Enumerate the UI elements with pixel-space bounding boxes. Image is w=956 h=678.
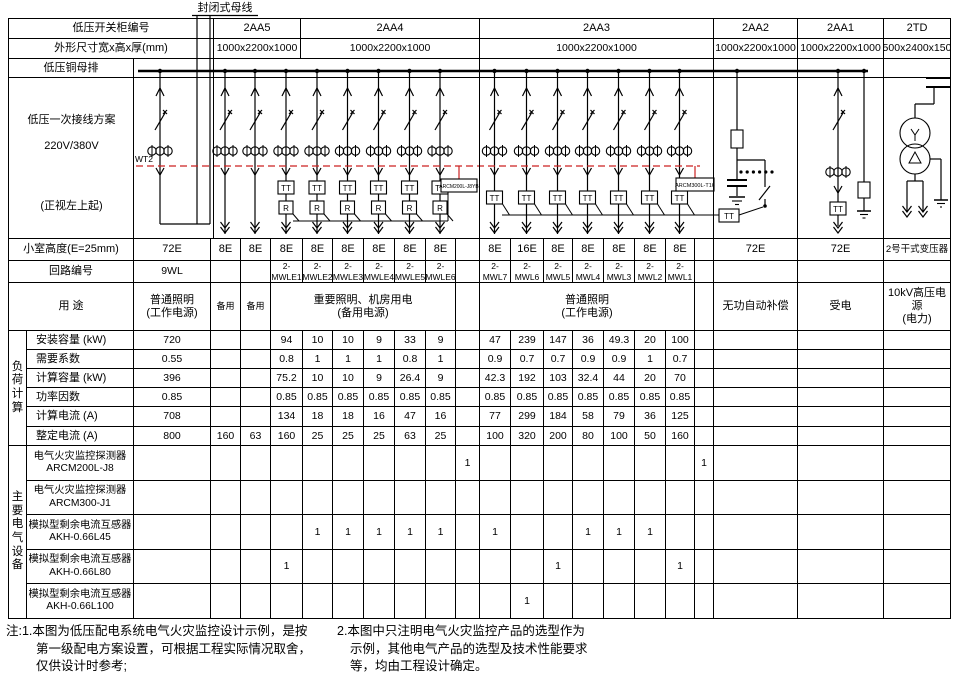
load-1-2AA1-col bbox=[797, 349, 884, 369]
device-2-2-MWLE2: 1 bbox=[302, 514, 333, 550]
load-5-spare-1: 160 bbox=[210, 426, 241, 446]
usage-cell-4 bbox=[455, 282, 480, 331]
load-1-2-MWLE5: 0.8 bbox=[394, 349, 426, 369]
load-2-2-MWL7: 42.3 bbox=[479, 368, 511, 388]
usage-cell-7: 无功自动补偿 bbox=[713, 282, 798, 331]
device-1-2-MWLE3 bbox=[332, 480, 364, 515]
device-row-label-2: 模拟型剩余电流互感器 AKH-0.66L45 bbox=[26, 514, 134, 550]
device-1-9WL bbox=[133, 480, 211, 515]
room-height-2-MWLE4: 8E bbox=[363, 238, 395, 261]
cabinet-dimension-2AA1: 1000x2200x1000 bbox=[797, 38, 884, 59]
load-4-2-MWL3: 79 bbox=[603, 406, 635, 427]
load-3-2-MWL7: 0.85 bbox=[479, 387, 511, 407]
load-4-2-MWLE3: 18 bbox=[332, 406, 364, 427]
usage-cell-1: 备用 bbox=[210, 282, 241, 331]
circuit-number-2AA2-col bbox=[713, 260, 798, 283]
room-height-2-MWL2: 8E bbox=[634, 238, 666, 261]
room-height-2-MWLE2: 8E bbox=[302, 238, 333, 261]
circuit-number-2-MWL3: 2-MWL3 bbox=[603, 260, 635, 283]
load-3-2TD-col bbox=[883, 387, 951, 407]
load-3-spare-2 bbox=[240, 387, 271, 407]
load-2-2-MWLE6: 9 bbox=[425, 368, 456, 388]
load-4-2-MWL1: 125 bbox=[665, 406, 695, 427]
note-2: 2.本图中只注明电气火灾监控产品的选型作为 示例，其他电气产品的选型及技术性能要… bbox=[337, 623, 695, 676]
usage-cell-0: 普通照明 (工作电源) bbox=[133, 282, 211, 331]
usage-cell-2: 备用 bbox=[240, 282, 271, 331]
circuit-number-2-MWLE2: 2-MWLE2 bbox=[302, 260, 333, 283]
load-1-2-MWLE1: 0.8 bbox=[270, 349, 303, 369]
load-2-2-MWL5: 103 bbox=[543, 368, 573, 388]
device-0-2-MWLE1 bbox=[270, 445, 303, 481]
device-3-9WL bbox=[133, 549, 211, 584]
device-3-2-MWL7 bbox=[479, 549, 511, 584]
load-3-2-MWLE2: 0.85 bbox=[302, 387, 333, 407]
scheme-cabinet-area-1 bbox=[213, 77, 480, 239]
load-5-2AA1-col bbox=[797, 426, 884, 446]
room-height-row-label: 小室高度(E=25mm) bbox=[8, 238, 134, 261]
circuit-number-2-MWLE1: 2-MWLE1 bbox=[270, 260, 303, 283]
room-height-spare-2: 8E bbox=[240, 238, 271, 261]
device-0-2-MWLE3 bbox=[332, 445, 364, 481]
circuit-number-2-MWL4: 2-MWL4 bbox=[572, 260, 604, 283]
device-3-2-MWL2 bbox=[634, 549, 666, 584]
device-2-2-MWL6 bbox=[510, 514, 544, 550]
device-4-2-MWLE2 bbox=[302, 583, 333, 619]
device-1-2AA1-col bbox=[797, 480, 884, 515]
load-1-2-MWL3: 0.9 bbox=[603, 349, 635, 369]
device-2-2-MWL7: 1 bbox=[479, 514, 511, 550]
dimension-row-label: 外形尺寸宽x高x厚(mm) bbox=[8, 38, 214, 59]
busway-label: 封闭式母线 bbox=[198, 0, 253, 14]
device-3-2-MWLE6 bbox=[425, 549, 456, 584]
circuit-number-2-MWL1: 2-MWL1 bbox=[665, 260, 695, 283]
busbar-cell-1 bbox=[213, 58, 480, 78]
load-1-2-MWLE4: 1 bbox=[363, 349, 395, 369]
load-3-2-MWLE6: 0.85 bbox=[425, 387, 456, 407]
device-4-aux-left bbox=[455, 583, 480, 619]
load-5-aux-right bbox=[694, 426, 714, 446]
load-0-2-MWL5: 147 bbox=[543, 330, 573, 350]
usage-cell-9: 10kV高压电源 (电力) bbox=[883, 282, 951, 331]
device-0-aux-left: 1 bbox=[455, 445, 480, 481]
note-1: 注:1.本图为低压配电系统电气火灾监控设计示例，是按 第一级配电方案设置，可根据… bbox=[6, 623, 366, 676]
room-height-2-MWL4: 8E bbox=[572, 238, 604, 261]
load-row-label-2: 计算容量 (kW) bbox=[26, 368, 134, 388]
load-0-2-MWLE6: 9 bbox=[425, 330, 456, 350]
load-3-2-MWL5: 0.85 bbox=[543, 387, 573, 407]
circuit-number-spare-1 bbox=[210, 260, 241, 283]
device-row-label-0: 电气火灾监控探测器 ARCM200L-J8 bbox=[26, 445, 134, 481]
device-4-2AA2-col bbox=[713, 583, 798, 619]
load-0-spare-2 bbox=[240, 330, 271, 350]
device-4-2-MWL7 bbox=[479, 583, 511, 619]
device-0-2-MWL4 bbox=[572, 445, 604, 481]
device-1-spare-1 bbox=[210, 480, 241, 515]
load-3-2-MWLE3: 0.85 bbox=[332, 387, 364, 407]
device-4-2-MWL6: 1 bbox=[510, 583, 544, 619]
cabinet-dimension-2AA5: 1000x2200x1000 bbox=[213, 38, 301, 59]
device-0-9WL bbox=[133, 445, 211, 481]
device-2-2-MWLE4: 1 bbox=[363, 514, 395, 550]
device-4-2-MWLE3 bbox=[332, 583, 364, 619]
device-3-2-MWLE4 bbox=[363, 549, 395, 584]
load-4-2-MWLE1: 134 bbox=[270, 406, 303, 427]
load-4-spare-2 bbox=[240, 406, 271, 427]
cabinet-id-2AA5: 2AA5 bbox=[213, 18, 301, 39]
load-4-2-MWLE2: 18 bbox=[302, 406, 333, 427]
device-4-2-MWL5 bbox=[543, 583, 573, 619]
device-1-2-MWL4 bbox=[572, 480, 604, 515]
cabinet-id-2AA1: 2AA1 bbox=[797, 18, 884, 39]
circuit-number-2-MWLE6: 2-MWLE6 bbox=[425, 260, 456, 283]
load-1-2-MWL7: 0.9 bbox=[479, 349, 511, 369]
cabinet-dimension-2AA4: 1000x2200x1000 bbox=[300, 38, 480, 59]
busbar-cell-4 bbox=[797, 58, 884, 78]
room-height-2-MWL3: 8E bbox=[603, 238, 635, 261]
device-row-label-1: 电气火灾监控探测器 ARCM300-J1 bbox=[26, 480, 134, 515]
load-0-9WL: 720 bbox=[133, 330, 211, 350]
room-height-2-MWLE6: 8E bbox=[425, 238, 456, 261]
load-4-2-MWL5: 184 bbox=[543, 406, 573, 427]
device-1-2-MWLE5 bbox=[394, 480, 426, 515]
device-4-9WL bbox=[133, 583, 211, 619]
load-1-2-MWL1: 0.7 bbox=[665, 349, 695, 369]
load-1-2-MWL4: 0.9 bbox=[572, 349, 604, 369]
load-4-2-MWL7: 77 bbox=[479, 406, 511, 427]
device-2-spare-1 bbox=[210, 514, 241, 550]
device-2-2-MWLE6: 1 bbox=[425, 514, 456, 550]
load-5-2-MWL6: 320 bbox=[510, 426, 544, 446]
load-1-2-MWL2: 1 bbox=[634, 349, 666, 369]
device-1-aux-right bbox=[694, 480, 714, 515]
load-0-2-MWLE1: 94 bbox=[270, 330, 303, 350]
device-2-2-MWL1 bbox=[665, 514, 695, 550]
room-height-9WL: 72E bbox=[133, 238, 211, 261]
load-2-2-MWLE5: 26.4 bbox=[394, 368, 426, 388]
device-4-2-MWL3 bbox=[603, 583, 635, 619]
load-4-spare-1 bbox=[210, 406, 241, 427]
device-1-2-MWLE4 bbox=[363, 480, 395, 515]
device-0-2-MWLE2 bbox=[302, 445, 333, 481]
load-0-2AA1-col bbox=[797, 330, 884, 350]
device-3-2-MWLE1: 1 bbox=[270, 549, 303, 584]
device-2-2-MWL5 bbox=[543, 514, 573, 550]
load-2-aux-left bbox=[455, 368, 480, 388]
load-3-2-MWL6: 0.85 bbox=[510, 387, 544, 407]
device-2-spare-2 bbox=[240, 514, 271, 550]
busbar-cell-0 bbox=[133, 58, 214, 78]
device-row-label-3: 模拟型剩余电流互感器 AKH-0.66L80 bbox=[26, 549, 134, 584]
device-0-2-MWL5 bbox=[543, 445, 573, 481]
scheme-view-note: (正视左上起) bbox=[9, 200, 134, 213]
device-1-2-MWL1 bbox=[665, 480, 695, 515]
device-3-spare-2 bbox=[240, 549, 271, 584]
device-1-spare-2 bbox=[240, 480, 271, 515]
room-height-2-MWL6: 16E bbox=[510, 238, 544, 261]
usage-cell-8: 受电 bbox=[797, 282, 884, 331]
load-3-2AA2-col bbox=[713, 387, 798, 407]
device-2-9WL bbox=[133, 514, 211, 550]
circuit-number-2TD-col bbox=[883, 260, 951, 283]
load-5-aux-left bbox=[455, 426, 480, 446]
load-4-aux-left bbox=[455, 406, 480, 427]
room-height-aux-left bbox=[455, 238, 480, 261]
scheme-cabinet-area-2 bbox=[479, 77, 714, 239]
device-4-spare-2 bbox=[240, 583, 271, 619]
load-5-2-MWL1: 160 bbox=[665, 426, 695, 446]
load-4-2-MWL6: 299 bbox=[510, 406, 544, 427]
load-2-2-MWL1: 70 bbox=[665, 368, 695, 388]
device-0-2-MWLE4 bbox=[363, 445, 395, 481]
load-1-spare-2 bbox=[240, 349, 271, 369]
load-4-2-MWLE4: 16 bbox=[363, 406, 395, 427]
device-4-2-MWLE6 bbox=[425, 583, 456, 619]
load-3-2-MWL1: 0.85 bbox=[665, 387, 695, 407]
device-2-2-MWL2: 1 bbox=[634, 514, 666, 550]
device-1-2-MWLE6 bbox=[425, 480, 456, 515]
device-3-2-MWLE3 bbox=[332, 549, 364, 584]
usage-cell-3: 重要照明、机房用电 (备用电源) bbox=[270, 282, 456, 331]
circuit-number-2-MWLE4: 2-MWLE4 bbox=[363, 260, 395, 283]
load-2-spare-1 bbox=[210, 368, 241, 388]
load-0-2-MWLE2: 10 bbox=[302, 330, 333, 350]
device-3-2-MWLE2 bbox=[302, 549, 333, 584]
load-1-9WL: 0.55 bbox=[133, 349, 211, 369]
scheme-cabinet-area-3 bbox=[713, 77, 798, 239]
cabinet-id-2AA4: 2AA4 bbox=[300, 18, 480, 39]
room-height-2-MWLE1: 8E bbox=[270, 238, 303, 261]
device-3-2-MWL6 bbox=[510, 549, 544, 584]
load-0-2-MWLE3: 10 bbox=[332, 330, 364, 350]
load-1-2-MWL5: 0.7 bbox=[543, 349, 573, 369]
load-2-spare-2 bbox=[240, 368, 271, 388]
load-5-2-MWL7: 100 bbox=[479, 426, 511, 446]
load-0-aux-right bbox=[694, 330, 714, 350]
device-4-2TD-col bbox=[883, 583, 951, 619]
device-1-2-MWLE1 bbox=[270, 480, 303, 515]
room-height-spare-1: 8E bbox=[210, 238, 241, 261]
device-3-2-MWL5: 1 bbox=[543, 549, 573, 584]
load-5-2-MWL4: 80 bbox=[572, 426, 604, 446]
load-5-2-MWLE6: 25 bbox=[425, 426, 456, 446]
circuit-number-2-MWL5: 2-MWL5 bbox=[543, 260, 573, 283]
load-0-2-MWL6: 239 bbox=[510, 330, 544, 350]
device-1-2-MWL6 bbox=[510, 480, 544, 515]
device-3-aux-left bbox=[455, 549, 480, 584]
device-1-aux-left bbox=[455, 480, 480, 515]
load-5-2-MWLE2: 25 bbox=[302, 426, 333, 446]
busbar-cell-5 bbox=[883, 58, 951, 78]
cabinet-id-2AA3: 2AA3 bbox=[479, 18, 714, 39]
device-3-2-MWL3 bbox=[603, 549, 635, 584]
device-0-aux-right: 1 bbox=[694, 445, 714, 481]
load-3-2-MWL2: 0.85 bbox=[634, 387, 666, 407]
device-4-aux-right bbox=[694, 583, 714, 619]
load-5-2-MWLE1: 160 bbox=[270, 426, 303, 446]
device-2-2-MWLE3: 1 bbox=[332, 514, 364, 550]
device-2-2-MWL4: 1 bbox=[572, 514, 604, 550]
device-1-2-MWL2 bbox=[634, 480, 666, 515]
circuit-number-2AA1-col bbox=[797, 260, 884, 283]
device-0-2-MWL7 bbox=[479, 445, 511, 481]
device-2-2AA1-col bbox=[797, 514, 884, 550]
load-2-2-MWL6: 192 bbox=[510, 368, 544, 388]
load-1-2AA2-col bbox=[713, 349, 798, 369]
cabinet-dimension-2TD: 2500x2400x1500 bbox=[883, 38, 951, 59]
load-group-label: 负 荷 计 算 bbox=[8, 330, 27, 446]
load-2-2-MWLE4: 9 bbox=[363, 368, 395, 388]
load-row-label-4: 计算电流 (A) bbox=[26, 406, 134, 427]
busbar-cell-2 bbox=[479, 58, 714, 78]
room-height-2AA1-col: 72E bbox=[797, 238, 884, 261]
load-0-2-MWL2: 20 bbox=[634, 330, 666, 350]
load-5-2-MWLE4: 25 bbox=[363, 426, 395, 446]
load-5-9WL: 800 bbox=[133, 426, 211, 446]
room-height-2-MWL1: 8E bbox=[665, 238, 695, 261]
device-4-2AA1-col bbox=[797, 583, 884, 619]
device-0-spare-2 bbox=[240, 445, 271, 481]
load-4-2-MWLE6: 16 bbox=[425, 406, 456, 427]
load-2-2-MWLE3: 10 bbox=[332, 368, 364, 388]
circuit-number-aux-left bbox=[455, 260, 480, 283]
room-height-2-MWL7: 8E bbox=[479, 238, 511, 261]
load-3-2-MWL3: 0.85 bbox=[603, 387, 635, 407]
load-5-2AA2-col bbox=[713, 426, 798, 446]
scheme-cabinet-area-0 bbox=[133, 77, 214, 239]
usage-cell-5: 普通照明 (工作电源) bbox=[479, 282, 695, 331]
load-1-2-MWLE2: 1 bbox=[302, 349, 333, 369]
device-0-spare-1 bbox=[210, 445, 241, 481]
device-0-2-MWLE5 bbox=[394, 445, 426, 481]
load-3-2-MWLE1: 0.85 bbox=[270, 387, 303, 407]
device-1-2-MWL5 bbox=[543, 480, 573, 515]
load-5-2-MWL3: 100 bbox=[603, 426, 635, 446]
cabinet-id-2AA2: 2AA2 bbox=[713, 18, 798, 39]
device-4-2-MWLE1 bbox=[270, 583, 303, 619]
device-2-2-MWLE1 bbox=[270, 514, 303, 550]
load-0-2AA2-col bbox=[713, 330, 798, 350]
scheme-cabinet-area-5 bbox=[883, 77, 951, 239]
device-3-2-MWL4 bbox=[572, 549, 604, 584]
load-4-2TD-col bbox=[883, 406, 951, 427]
load-0-2TD-col bbox=[883, 330, 951, 350]
load-4-2-MWL2: 36 bbox=[634, 406, 666, 427]
load-1-spare-1 bbox=[210, 349, 241, 369]
load-2-9WL: 396 bbox=[133, 368, 211, 388]
load-5-2-MWL2: 50 bbox=[634, 426, 666, 446]
load-4-2AA2-col bbox=[713, 406, 798, 427]
load-4-2-MWL4: 58 bbox=[572, 406, 604, 427]
device-3-2TD-col bbox=[883, 549, 951, 584]
load-row-label-3: 功率因数 bbox=[26, 387, 134, 407]
cabinet-dimension-2AA3: 1000x2200x1000 bbox=[479, 38, 714, 59]
scheme-cabinet-area-4 bbox=[797, 77, 884, 239]
load-1-2-MWLE3: 1 bbox=[332, 349, 364, 369]
room-height-aux-right bbox=[694, 238, 714, 261]
device-3-2AA2-col bbox=[713, 549, 798, 584]
busbar-cell-3 bbox=[713, 58, 798, 78]
scheme-title: 低压一次接线方案 bbox=[9, 114, 134, 127]
load-5-2TD-col bbox=[883, 426, 951, 446]
device-1-2-MWL3 bbox=[603, 480, 635, 515]
device-0-2AA2-col bbox=[713, 445, 798, 481]
drawing-sheet: 封闭式母线TTRTTRTTRTTRTTRTTRTTTTTTTTTTTTTTWT2… bbox=[0, 0, 956, 678]
device-row-label-4: 模拟型剩余电流互感器 AKH-0.66L100 bbox=[26, 583, 134, 619]
device-4-2-MWL2 bbox=[634, 583, 666, 619]
load-2-2-MWL3: 44 bbox=[603, 368, 635, 388]
load-4-2AA1-col bbox=[797, 406, 884, 427]
device-1-2TD-col bbox=[883, 480, 951, 515]
device-0-2-MWL6 bbox=[510, 445, 544, 481]
load-0-aux-left bbox=[455, 330, 480, 350]
usage-cell-6 bbox=[694, 282, 714, 331]
device-0-2-MWL2 bbox=[634, 445, 666, 481]
load-2-2-MWL2: 20 bbox=[634, 368, 666, 388]
load-3-aux-right bbox=[694, 387, 714, 407]
device-3-aux-right bbox=[694, 549, 714, 584]
room-height-2-MWLE5: 8E bbox=[394, 238, 426, 261]
usage-row-label: 用 途 bbox=[8, 282, 134, 331]
load-0-2-MWL3: 49.3 bbox=[603, 330, 635, 350]
device-0-2-MWLE6 bbox=[425, 445, 456, 481]
device-group-label: 主 要 电 气 设 备 bbox=[8, 445, 27, 619]
load-3-2-MWL4: 0.85 bbox=[572, 387, 604, 407]
room-height-2-MWLE3: 8E bbox=[332, 238, 364, 261]
device-1-2AA2-col bbox=[713, 480, 798, 515]
load-0-2-MWL4: 36 bbox=[572, 330, 604, 350]
load-0-2-MWL1: 100 bbox=[665, 330, 695, 350]
room-height-2TD-col: 2号干式变压器 bbox=[883, 238, 951, 261]
load-2-2-MWLE2: 10 bbox=[302, 368, 333, 388]
circuit-number-2-MWL7: 2-MWL7 bbox=[479, 260, 511, 283]
device-2-2-MWL3: 1 bbox=[603, 514, 635, 550]
circuit-number-spare-2 bbox=[240, 260, 271, 283]
circuit-row-label: 回路编号 bbox=[8, 260, 134, 283]
device-0-2TD-col bbox=[883, 445, 951, 481]
device-4-2-MWLE4 bbox=[363, 583, 395, 619]
load-3-aux-left bbox=[455, 387, 480, 407]
load-0-2-MWLE5: 33 bbox=[394, 330, 426, 350]
load-row-label-0: 安装容量 (kW) bbox=[26, 330, 134, 350]
circuit-number-aux-right bbox=[694, 260, 714, 283]
load-row-label-1: 需要系数 bbox=[26, 349, 134, 369]
device-0-2AA1-col bbox=[797, 445, 884, 481]
load-5-spare-2: 63 bbox=[240, 426, 271, 446]
device-2-2-MWLE5: 1 bbox=[394, 514, 426, 550]
load-1-2-MWLE6: 1 bbox=[425, 349, 456, 369]
device-3-2-MWLE5 bbox=[394, 549, 426, 584]
load-3-9WL: 0.85 bbox=[133, 387, 211, 407]
load-1-2-MWL6: 0.7 bbox=[510, 349, 544, 369]
scheme-label-cell: 低压一次接线方案220V/380V(正视左上起) bbox=[8, 77, 134, 239]
device-0-2-MWL3 bbox=[603, 445, 635, 481]
room-height-2AA2-col: 72E bbox=[713, 238, 798, 261]
load-2-2AA2-col bbox=[713, 368, 798, 388]
circuit-number-2-MWL2: 2-MWL2 bbox=[634, 260, 666, 283]
cabinet-dimension-2AA2: 1000x2200x1000 bbox=[713, 38, 798, 59]
load-0-2-MWL7: 47 bbox=[479, 330, 511, 350]
circuit-number-9WL: 9WL bbox=[133, 260, 211, 283]
busbar-row-label: 低压铜母排 bbox=[8, 58, 134, 78]
scheme-voltage: 220V/380V bbox=[9, 140, 134, 153]
cabinet-id-2TD: 2TD bbox=[883, 18, 951, 39]
load-2-2AA1-col bbox=[797, 368, 884, 388]
device-1-2-MWL7 bbox=[479, 480, 511, 515]
device-4-2-MWL1 bbox=[665, 583, 695, 619]
circuit-number-2-MWL6: 2-MWL6 bbox=[510, 260, 544, 283]
device-0-2-MWL1 bbox=[665, 445, 695, 481]
load-4-aux-right bbox=[694, 406, 714, 427]
